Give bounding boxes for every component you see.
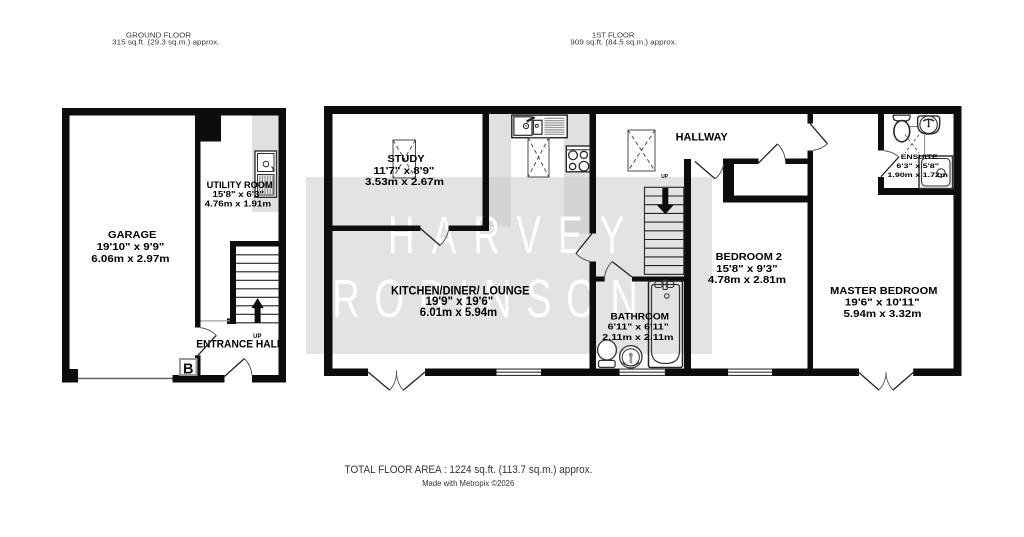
svg-text:HARVEY: HARVEY <box>388 205 641 264</box>
svg-text:19'10" x 9'9": 19'10" x 9'9" <box>97 242 165 253</box>
svg-text:BATHROOM: BATHROOM <box>611 312 670 322</box>
svg-text:19'6" x 10'11": 19'6" x 10'11" <box>845 298 920 309</box>
svg-text:315 sq.ft. (29.3 sq.m.) approx: 315 sq.ft. (29.3 sq.m.) approx. <box>112 39 219 46</box>
svg-text:GARAGE: GARAGE <box>108 230 156 241</box>
svg-text:6'11" x 6'11": 6'11" x 6'11" <box>608 321 669 331</box>
svg-text:B: B <box>183 361 193 377</box>
svg-text:2.11m x 2.11m: 2.11m x 2.11m <box>602 332 674 342</box>
svg-text:STUDY: STUDY <box>387 154 424 165</box>
svg-text:UP: UP <box>253 333 261 340</box>
svg-text:HALLWAY: HALLWAY <box>676 131 729 143</box>
svg-text:15'8" x 6'3": 15'8" x 6'3" <box>213 189 265 199</box>
svg-text:4.76m x 1.91m: 4.76m x 1.91m <box>205 199 272 209</box>
svg-text:11'7" x 8'9": 11'7" x 8'9" <box>373 166 434 177</box>
svg-text:6.01m x 5.94m: 6.01m x 5.94m <box>420 306 497 319</box>
svg-text:ENSUITE: ENSUITE <box>901 154 938 161</box>
svg-text:6.06m x 2.97m: 6.06m x 2.97m <box>91 254 169 265</box>
svg-text:3.53m x 2.67m: 3.53m x 2.67m <box>365 177 444 188</box>
svg-text:1ST FLOOR: 1ST FLOOR <box>592 32 635 39</box>
svg-text:GROUND FLOOR: GROUND FLOOR <box>126 32 191 39</box>
svg-text:909 sq.ft. (84.5 sq.m.) approx: 909 sq.ft. (84.5 sq.m.) approx. <box>570 39 677 46</box>
svg-text:15'8" x 9'3": 15'8" x 9'3" <box>716 264 778 275</box>
svg-text:MASTER BEDROOM: MASTER BEDROOM <box>830 285 937 297</box>
svg-text:BEDROOM 2: BEDROOM 2 <box>716 251 783 263</box>
svg-text:TOTAL FLOOR AREA : 1224 sq.ft.: TOTAL FLOOR AREA : 1224 sq.ft. (113.7 sq… <box>345 464 593 476</box>
svg-text:4.78m x 2.81m: 4.78m x 2.81m <box>708 275 786 286</box>
svg-text:Made with Metropix ©2026: Made with Metropix ©2026 <box>422 478 514 488</box>
svg-text:1.90m x 1.72m: 1.90m x 1.72m <box>887 172 948 179</box>
svg-text:5.94m x 3.32m: 5.94m x 3.32m <box>844 309 922 320</box>
svg-text:UP: UP <box>661 174 668 180</box>
svg-text:ENTRANCE HALL: ENTRANCE HALL <box>196 338 283 350</box>
svg-text:6'3" x 5'8": 6'3" x 5'8" <box>896 163 939 170</box>
